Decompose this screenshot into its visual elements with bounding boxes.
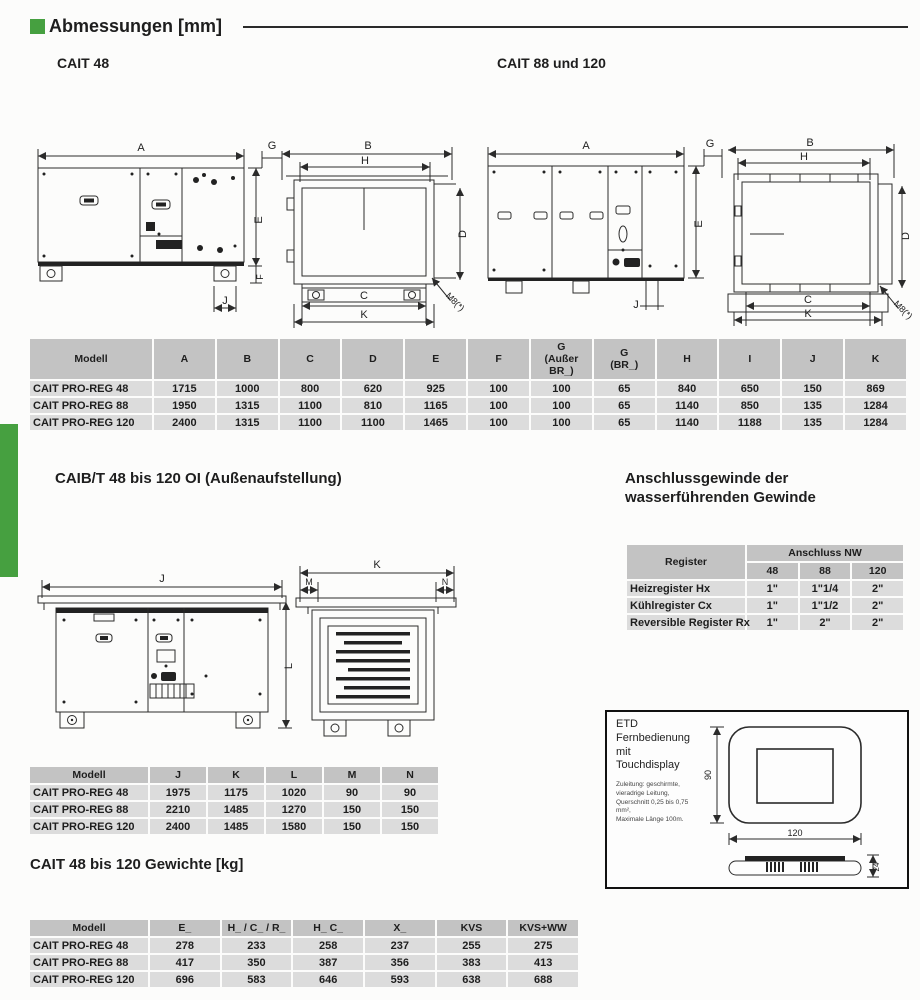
etd-note-line: Maximale Länge 100m. xyxy=(616,816,702,825)
value-cell: 100 xyxy=(531,398,592,413)
value-cell: 1715 xyxy=(154,381,215,396)
column-header: K xyxy=(845,339,906,379)
value-cell: 258 xyxy=(293,938,363,953)
page-title: Abmessungen [mm] xyxy=(49,16,222,37)
table-row: CAIT PRO-REG 481715100080062092510010065… xyxy=(30,381,906,396)
value-cell: 840 xyxy=(657,381,718,396)
value-cell: 100 xyxy=(531,381,592,396)
anschluss-table: Register Anschluss NW 48 88 120 Heizregi… xyxy=(625,543,905,632)
model-cell: CAIT PRO-REG 120 xyxy=(30,819,148,834)
value-cell: 135 xyxy=(782,415,843,430)
model-cell: CAIT PRO-REG 88 xyxy=(30,398,152,413)
column-header: L xyxy=(266,767,322,783)
cait48-front-drawing: A E F J xyxy=(28,140,263,318)
value-cell: 383 xyxy=(437,955,507,970)
column-header: E_ xyxy=(150,920,220,936)
outdoor-table: ModellJKLMNCAIT PRO-REG 4819751175102090… xyxy=(28,765,440,836)
dim-label-c: C xyxy=(360,290,368,302)
value-cell: 275 xyxy=(508,938,578,953)
column-header: E xyxy=(405,339,466,379)
value-cell: 1" xyxy=(747,598,798,613)
value-cell: 810 xyxy=(342,398,403,413)
dim-label-h: H xyxy=(800,151,808,163)
value-cell: 1000 xyxy=(217,381,278,396)
etd-title: ETD xyxy=(616,718,702,732)
etd-text-block: ETD Fernbedienung mit Touchdisplay Zulei… xyxy=(616,718,702,825)
table-row: CAIT PRO-REG 88417350387356383413 xyxy=(30,955,578,970)
caibt-side-drawing: K M N xyxy=(288,558,473,760)
value-cell: 90 xyxy=(382,785,438,800)
value-cell: 1140 xyxy=(657,398,718,413)
column-header: X_ xyxy=(365,920,435,936)
value-cell: 65 xyxy=(594,381,655,396)
value-cell: 90 xyxy=(324,785,380,800)
model-cell: CAIT PRO-REG 120 xyxy=(30,415,152,430)
value-cell: 2" xyxy=(852,615,903,630)
value-cell: 1315 xyxy=(217,415,278,430)
section-title-cait48: CAIT 48 xyxy=(57,55,109,71)
dim-label-g: G xyxy=(268,140,277,152)
value-cell: 150 xyxy=(324,802,380,817)
value-cell: 1284 xyxy=(845,398,906,413)
etd-subtitle-1: Fernbedienung mit xyxy=(616,732,702,760)
value-cell: 100 xyxy=(468,381,529,396)
column-header: M xyxy=(324,767,380,783)
header-rule xyxy=(243,26,908,28)
column-header: D xyxy=(342,339,403,379)
register-cell: Reversible Register Rx xyxy=(627,615,745,630)
value-cell: 1" xyxy=(747,615,798,630)
value-cell: 100 xyxy=(468,398,529,413)
column-header: B xyxy=(217,339,278,379)
dim-label-n: N xyxy=(442,577,449,587)
value-cell: 650 xyxy=(719,381,780,396)
value-cell: 1485 xyxy=(208,802,264,817)
value-cell: 2210 xyxy=(150,802,206,817)
value-cell: 100 xyxy=(468,415,529,430)
section-title-caibt: CAIB/T 48 bis 120 OI (Außenaufstellung) xyxy=(55,470,342,487)
value-cell: 1315 xyxy=(217,398,278,413)
dim-label-a: A xyxy=(137,142,145,154)
gewichte-heading: CAIT 48 bis 120 Gewichte [kg] xyxy=(30,856,243,873)
column-header: A xyxy=(154,339,215,379)
page-header: Abmessungen [mm] xyxy=(30,16,222,37)
weight-table: ModellE_H_ / C_ / R_H_ C_X_KVSKVS+WWCAIT… xyxy=(28,918,580,989)
dim-label-j: J xyxy=(222,295,228,307)
caibt-front-drawing: J L xyxy=(30,572,295,760)
model-cell: CAIT PRO-REG 48 xyxy=(30,381,152,396)
value-cell: 638 xyxy=(437,972,507,987)
register-cell: Kühlregister Cx xyxy=(627,598,745,613)
etd-subtitle-2: Touchdisplay xyxy=(616,759,702,773)
cait88-front-drawing: A E J xyxy=(478,138,713,334)
value-cell: 135 xyxy=(782,398,843,413)
value-cell: 278 xyxy=(150,938,220,953)
value-cell: 356 xyxy=(365,955,435,970)
dim-label-g: G xyxy=(706,138,715,150)
dim-label-90: 90 xyxy=(703,770,713,780)
column-header: Modell xyxy=(30,767,148,783)
green-square-icon xyxy=(30,19,45,34)
value-cell: 696 xyxy=(150,972,220,987)
value-cell: 350 xyxy=(222,955,292,970)
dim-label-120: 120 xyxy=(787,828,802,838)
column-header: I xyxy=(719,339,780,379)
model-cell: CAIT PRO-REG 88 xyxy=(30,802,148,817)
dim-label-b: B xyxy=(806,137,813,149)
column-header-120: 120 xyxy=(852,563,903,579)
column-header: J xyxy=(782,339,843,379)
etd-note-line: vieradrige Leitung, xyxy=(616,790,702,799)
value-cell: 850 xyxy=(719,398,780,413)
value-cell: 150 xyxy=(324,819,380,834)
column-header-group: Anschluss NW xyxy=(747,545,903,561)
value-cell: 583 xyxy=(222,972,292,987)
column-header-48: 48 xyxy=(747,563,798,579)
dimension-table-wrap: ModellABCDEFG (Außer BR_)G (BR_)HIJKCAIT… xyxy=(28,337,908,432)
value-cell: 1270 xyxy=(266,802,322,817)
cait48-side-drawing: G B H D C K M8(*) xyxy=(256,138,468,330)
value-cell: 1"1/2 xyxy=(800,598,851,613)
value-cell: 1020 xyxy=(266,785,322,800)
etd-note-line: Zuleitung: geschirmte, xyxy=(616,781,702,790)
value-cell: 150 xyxy=(382,802,438,817)
value-cell: 2400 xyxy=(154,415,215,430)
table-row: CAIT PRO-REG 120696583646593638688 xyxy=(30,972,578,987)
outdoor-table-wrap: ModellJKLMNCAIT PRO-REG 4819751175102090… xyxy=(28,765,440,836)
value-cell: 417 xyxy=(150,955,220,970)
value-cell: 1175 xyxy=(208,785,264,800)
register-cell: Heizregister Hx xyxy=(627,581,745,596)
table-row: CAIT PRO-REG 48278233258237255275 xyxy=(30,938,578,953)
value-cell: 593 xyxy=(365,972,435,987)
value-cell: 150 xyxy=(382,819,438,834)
cait88-side-drawing: G B H D C K M8(*) xyxy=(700,136,915,332)
value-cell: 2" xyxy=(800,615,851,630)
header-row: ModellE_H_ / C_ / R_H_ C_X_KVSKVS+WW xyxy=(30,920,578,936)
value-cell: 1"1/4 xyxy=(800,581,851,596)
table-row: Reversible Register Rx 1" 2" 2" xyxy=(627,615,903,630)
dim-label-d: D xyxy=(900,232,912,240)
value-cell: 2" xyxy=(852,581,903,596)
dim-label-d: D xyxy=(457,230,468,238)
dim-label-depth: 24 xyxy=(872,862,881,871)
value-cell: 65 xyxy=(594,398,655,413)
etd-panel: ETD Fernbedienung mit Touchdisplay Zulei… xyxy=(605,710,909,889)
table-row: CAIT PRO-REG 881950131511008101165100100… xyxy=(30,398,906,413)
etd-remote-drawing: 90 120 24 xyxy=(701,715,903,883)
table-row: Heizregister Hx 1" 1"1/4 2" xyxy=(627,581,903,596)
model-cell: CAIT PRO-REG 88 xyxy=(30,955,148,970)
dim-label-a: A xyxy=(582,140,590,152)
value-cell: 1975 xyxy=(150,785,206,800)
value-cell: 1284 xyxy=(845,415,906,430)
value-cell: 65 xyxy=(594,415,655,430)
dim-label-k: K xyxy=(360,309,368,321)
value-cell: 1140 xyxy=(657,415,718,430)
value-cell: 1950 xyxy=(154,398,215,413)
value-cell: 1165 xyxy=(405,398,466,413)
dim-label-c: C xyxy=(804,294,812,306)
model-cell: CAIT PRO-REG 48 xyxy=(30,785,148,800)
value-cell: 150 xyxy=(782,381,843,396)
column-header: H xyxy=(657,339,718,379)
dim-label-k: K xyxy=(373,559,381,571)
column-header: J xyxy=(150,767,206,783)
dimension-table: ModellABCDEFG (Außer BR_)G (BR_)HIJKCAIT… xyxy=(28,337,908,432)
value-cell: 100 xyxy=(531,415,592,430)
value-cell: 413 xyxy=(508,955,578,970)
column-header: C xyxy=(280,339,341,379)
column-header-88: 88 xyxy=(800,563,851,579)
value-cell: 1" xyxy=(747,581,798,596)
column-header: G (Außer BR_) xyxy=(531,339,592,379)
table-row: CAIT PRO-REG 120240014851580150150 xyxy=(30,819,438,834)
column-header: H_ C_ xyxy=(293,920,363,936)
dim-label-j: J xyxy=(633,299,639,311)
value-cell: 869 xyxy=(845,381,906,396)
column-header: Modell xyxy=(30,339,152,379)
value-cell: 255 xyxy=(437,938,507,953)
value-cell: 233 xyxy=(222,938,292,953)
value-cell: 620 xyxy=(342,381,403,396)
table-row: Kühlregister Cx 1" 1"1/2 2" xyxy=(627,598,903,613)
column-header: G (BR_) xyxy=(594,339,655,379)
anschluss-table-wrap: Register Anschluss NW 48 88 120 Heizregi… xyxy=(625,543,905,632)
value-cell: 2400 xyxy=(150,819,206,834)
value-cell: 1100 xyxy=(280,415,341,430)
value-cell: 1100 xyxy=(342,415,403,430)
model-cell: CAIT PRO-REG 120 xyxy=(30,972,148,987)
value-cell: 925 xyxy=(405,381,466,396)
etd-note-line: Querschnitt 0,25 bis 0,75 mm², xyxy=(616,799,702,817)
table-row: CAIT PRO-REG 120240013151100110014651001… xyxy=(30,415,906,430)
column-header: N xyxy=(382,767,438,783)
value-cell: 688 xyxy=(508,972,578,987)
header-row: ModellJKLMN xyxy=(30,767,438,783)
column-header: KVS xyxy=(437,920,507,936)
value-cell: 1100 xyxy=(280,398,341,413)
table-row: CAIT PRO-REG 88221014851270150150 xyxy=(30,802,438,817)
column-header: Modell xyxy=(30,920,148,936)
dim-label-b: B xyxy=(364,140,371,152)
section-title-cait88: CAIT 88 und 120 xyxy=(497,55,606,71)
column-header-register: Register xyxy=(627,545,745,579)
value-cell: 2" xyxy=(852,598,903,613)
column-header: F xyxy=(468,339,529,379)
anschluss-heading: Anschlussgewinde der wasserführenden Gew… xyxy=(625,470,816,508)
value-cell: 1485 xyxy=(208,819,264,834)
table-row: CAIT PRO-REG 481975117510209090 xyxy=(30,785,438,800)
weight-table-wrap: ModellE_H_ / C_ / R_H_ C_X_KVSKVS+WWCAIT… xyxy=(28,918,580,989)
value-cell: 646 xyxy=(293,972,363,987)
column-header: KVS+WW xyxy=(508,920,578,936)
value-cell: 800 xyxy=(280,381,341,396)
header-row: ModellABCDEFG (Außer BR_)G (BR_)HIJK xyxy=(30,339,906,379)
dim-label-j: J xyxy=(159,573,165,585)
value-cell: 237 xyxy=(365,938,435,953)
value-cell: 1188 xyxy=(719,415,780,430)
bolt-label: M8(*) xyxy=(444,291,467,314)
value-cell: 387 xyxy=(293,955,363,970)
dim-label-h: H xyxy=(361,155,369,167)
value-cell: 1580 xyxy=(266,819,322,834)
model-cell: CAIT PRO-REG 48 xyxy=(30,938,148,953)
value-cell: 1465 xyxy=(405,415,466,430)
dim-label-k: K xyxy=(804,308,812,320)
column-header: K xyxy=(208,767,264,783)
column-header: H_ / C_ / R_ xyxy=(222,920,292,936)
bolt-label: M8(*) xyxy=(892,299,915,322)
dim-label-m: M xyxy=(305,577,313,587)
green-sidebar-bar xyxy=(0,424,18,577)
